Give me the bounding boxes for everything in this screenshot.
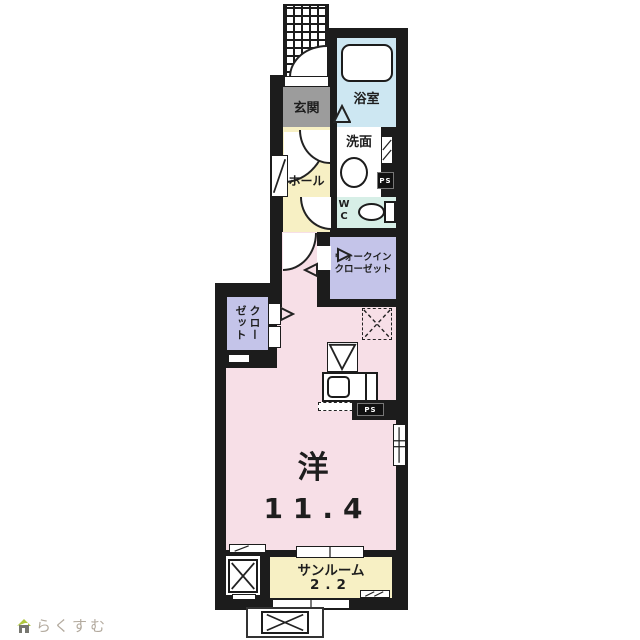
closet-door-panel-bottom bbox=[268, 326, 281, 348]
pipe-space-upper-label: PS bbox=[379, 177, 391, 185]
window-sunroom-right bbox=[360, 590, 390, 598]
pipe-space-lower: PS bbox=[357, 403, 384, 416]
floorplan-canvas: 玄関 浴室 洗面 ホール W C PS ウォークイン クローゼット 洋 11.4… bbox=[0, 0, 640, 640]
closet-door-direction-icon bbox=[279, 306, 295, 322]
window-alcove-top bbox=[229, 544, 266, 553]
toilet-bowl bbox=[358, 203, 385, 221]
kitchen-stove bbox=[327, 376, 350, 398]
refrigerator-space bbox=[362, 308, 392, 340]
washbasin bbox=[340, 157, 368, 188]
bath-door-icon bbox=[333, 104, 351, 124]
wic-label-line2: クローゼット bbox=[330, 261, 396, 275]
window-hall-left bbox=[271, 155, 288, 197]
brand-logo: らくすむ bbox=[16, 615, 108, 636]
window-washroom-right bbox=[381, 136, 393, 164]
closet-label: クローゼット bbox=[233, 301, 261, 345]
toilet-tank bbox=[384, 201, 396, 223]
window-alcove-bottom bbox=[232, 594, 256, 600]
room-door-direction-icon bbox=[302, 262, 319, 278]
main-room-size: 11.4 bbox=[230, 492, 396, 525]
pipe-space-lower-label: PS bbox=[364, 406, 376, 414]
brand-logo-text: らくすむ bbox=[36, 615, 108, 636]
genkan-label: 玄関 bbox=[283, 97, 330, 116]
pipe-space-upper: PS bbox=[377, 172, 394, 189]
washing-machine-pad bbox=[228, 559, 258, 593]
window-main-right bbox=[393, 424, 406, 466]
wc-label: W C bbox=[338, 199, 350, 223]
sunroom-label: サンルーム bbox=[270, 559, 392, 579]
hall-label: ホール bbox=[283, 172, 330, 189]
kitchen-sink-unit bbox=[327, 342, 358, 372]
bathtub bbox=[341, 44, 393, 82]
kitchen-counter-divider bbox=[365, 373, 367, 401]
outdoor-unit bbox=[261, 611, 309, 634]
house-icon bbox=[16, 618, 32, 634]
window-below-closet bbox=[228, 354, 250, 363]
entrance-step bbox=[284, 76, 329, 87]
main-room-label: 洋 bbox=[230, 442, 396, 487]
sunroom-entry-opening bbox=[296, 546, 364, 558]
washroom-label: 洗面 bbox=[337, 131, 381, 150]
wic-door-direction-icon bbox=[336, 247, 352, 263]
